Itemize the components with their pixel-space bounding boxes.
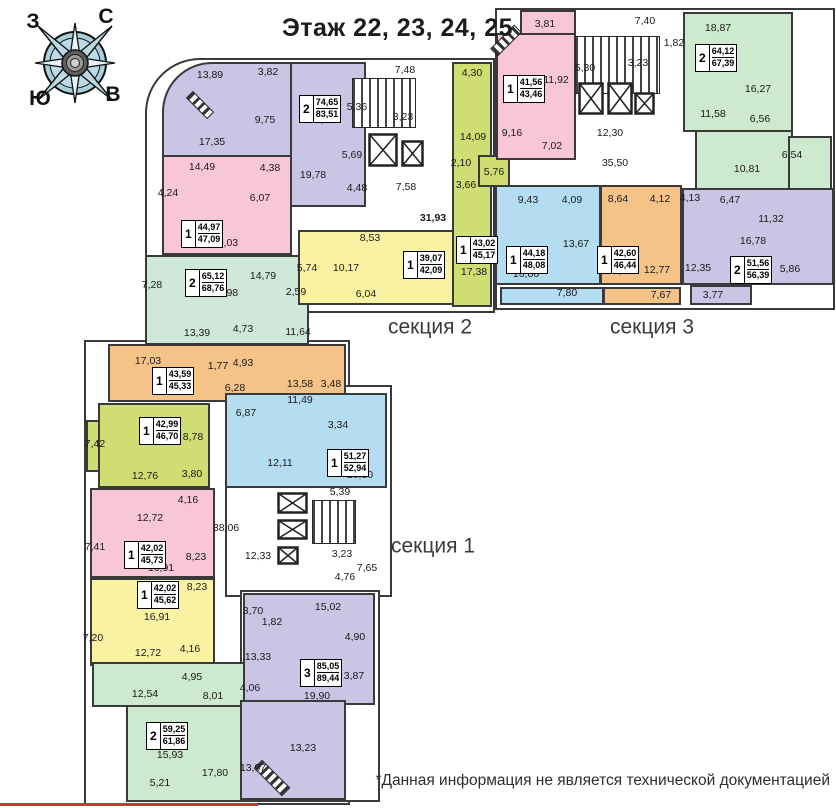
room-area-label: 10,17 [333, 263, 359, 274]
room-area-label: 11,64 [285, 327, 311, 338]
apartment-s3-1k-4346-info-badge: 141,5643,46 [503, 75, 545, 103]
apartment-s3-1k-4808-info-badge: 144,1848,08 [506, 246, 548, 274]
room-area-label: 7,02 [542, 141, 562, 152]
core-area-label: 3,23 [332, 549, 352, 560]
room-area-label: 19,78 [300, 170, 326, 181]
room-area-label: 7,80 [557, 288, 577, 299]
room-area-label: 13,58 [287, 379, 313, 390]
apartment-s1-2k-6186[interactable] [92, 662, 248, 707]
room-area-label: 4,24 [158, 188, 178, 199]
elevator-icon [277, 492, 308, 514]
core-area-label: 35,50 [602, 158, 628, 169]
room-area-label: 4,12 [650, 194, 670, 205]
room-area-label: 7,42 [85, 439, 105, 450]
compass-west-label: З [26, 10, 39, 34]
core-area-label: 5,39 [330, 487, 350, 498]
room-area-label: 9,75 [255, 115, 275, 126]
room-area-label: 8,64 [608, 194, 628, 205]
room-area-label: 12,72 [135, 648, 161, 659]
stairs-icon [312, 500, 356, 544]
core-area-label: 7,40 [635, 16, 655, 27]
room-area-label: 8,01 [203, 691, 223, 702]
apartment-s2-1k-4709-info-badge: 144,9747,09 [181, 220, 223, 248]
room-area-label: 14,09 [460, 132, 486, 143]
core-area-label: 3,23 [628, 58, 648, 69]
floor-plan-page: С З Ю В Этаж 22, 23, 24, 25 13,893,829,7… [0, 0, 836, 808]
elevator-icon [634, 92, 655, 115]
room-area-label: 6,04 [356, 289, 376, 300]
room-area-label: 11,58 [700, 109, 726, 120]
room-area-label: 8,53 [360, 233, 380, 244]
page-title: Этаж 22, 23, 24, 25 [282, 14, 513, 43]
room-area-label: 12,11 [267, 458, 293, 469]
room-area-label: 4,13 [680, 193, 700, 204]
elevator-icon [607, 82, 633, 115]
room-area-label: 6,07 [250, 193, 270, 204]
room-area-label: 5,74 [297, 263, 317, 274]
core-area-label: 12,30 [597, 128, 623, 139]
apartment-s2-2k-6876-info-badge: 265,1268,76 [185, 269, 227, 297]
apartment-s1-2k-6186-info-badge: 259,2561,86 [146, 722, 188, 750]
room-area-label: 11,92 [543, 75, 569, 86]
room-area-label: 3,80 [182, 469, 202, 480]
apartment-s1-2k-6186[interactable] [126, 705, 246, 802]
section-label: секция 3 [610, 317, 694, 338]
room-area-label: 6,54 [782, 150, 802, 161]
section-label: секция 1 [391, 536, 475, 557]
room-area-label: 2,59 [286, 287, 306, 298]
room-area-label: 1,77 [208, 361, 228, 372]
core-area-label: 31,93 [420, 213, 446, 224]
room-area-label: 4,09 [562, 195, 582, 206]
apartment-s3-2k-6739-info-badge: 264,1267,39 [695, 44, 737, 72]
room-area-label: 15,02 [315, 602, 341, 613]
room-area-label: 9,43 [518, 195, 538, 206]
room-area-label: 3,70 [243, 606, 263, 617]
compass-south-label: Ю [29, 87, 51, 111]
core-area-label: 4,76 [335, 572, 355, 583]
apartment-s1-3k-8944-info-badge: 385,0589,44 [300, 659, 342, 687]
room-area-label: 13,67 [563, 239, 589, 250]
core-area-label: 7,48 [395, 65, 415, 76]
room-area-label: 3,77 [703, 290, 723, 301]
room-area-label: 4,48 [347, 183, 367, 194]
room-area-label: 4,95 [182, 672, 202, 683]
room-area-label: 17,38 [461, 267, 487, 278]
room-area-label: 3,34 [328, 420, 348, 431]
elevator-icon [277, 519, 308, 540]
apartment-s2-1k-4209-info-badge: 139,0742,09 [403, 251, 445, 279]
core-area-label: 3,23 [393, 112, 413, 123]
room-area-label: 14,49 [189, 162, 215, 173]
compass-north-label: С [98, 5, 113, 29]
room-area-label: 3,87 [344, 671, 364, 682]
room-area-label: 8,23 [186, 552, 206, 563]
room-area-label: 4,06 [240, 683, 260, 694]
room-area-label: 1,82 [262, 617, 282, 628]
room-area-label: 12,54 [132, 689, 158, 700]
room-area-label: 6,47 [720, 195, 740, 206]
elevator-icon [277, 546, 299, 565]
room-area-label: 4,93 [233, 358, 253, 369]
room-area-label: 4,30 [462, 68, 482, 79]
apartment-s3-2k-6739[interactable] [695, 130, 793, 192]
room-area-label: 4,90 [345, 632, 365, 643]
room-area-label: 13,89 [197, 70, 223, 81]
section-label: секция 2 [388, 317, 472, 338]
room-area-label: 12,76 [132, 471, 158, 482]
bottom-red-line [0, 803, 258, 806]
room-area-label: 12,72 [137, 513, 163, 524]
room-area-label: 16,78 [740, 236, 766, 247]
compass-east-label: В [105, 83, 120, 107]
room-area-label: 16,91 [144, 612, 170, 623]
room-area-label: 16,27 [745, 84, 771, 95]
room-area-label: 13,39 [184, 328, 210, 339]
room-area-label: 6,28 [225, 383, 245, 394]
room-area-label: 4,73 [233, 324, 253, 335]
apartment-s1-1k-5294-info-badge: 151,2752,94 [327, 449, 369, 477]
room-area-label: 3,82 [258, 67, 278, 78]
room-area-label: 3,48 [321, 379, 341, 390]
apartment-s1-1k-4562-info-badge: 142,0245,62 [137, 581, 179, 609]
room-area-label: 19,90 [304, 691, 330, 702]
core-area-label: 7,65 [357, 563, 377, 574]
room-area-label: 5,86 [780, 264, 800, 275]
room-area-label: 7,28 [142, 280, 162, 291]
apartment-s3-2k-6739[interactable] [788, 136, 832, 190]
room-area-label: 3,66 [456, 180, 476, 191]
room-area-label: 12,77 [644, 265, 670, 276]
room-area-label: 13,23 [290, 743, 316, 754]
apartment-s3-2k-5639-info-badge: 251,5656,39 [730, 256, 772, 284]
room-area-label: 11,49 [287, 395, 313, 406]
room-area-label: 14,79 [250, 271, 276, 282]
room-area-label: 5,76 [484, 167, 504, 178]
apartment-s2-1k-4517-info-badge: 143,0245,17 [456, 236, 498, 264]
room-area-label: 4,38 [260, 163, 280, 174]
room-area-label: 10,81 [734, 164, 760, 175]
apartment-s3-1k-4644-info-badge: 142,6046,44 [597, 246, 639, 274]
room-area-label: 15,93 [157, 750, 183, 761]
room-area-label: 12,35 [685, 263, 711, 274]
core-area-label: 7,58 [396, 182, 416, 193]
room-area-label: 6,87 [236, 408, 256, 419]
disclaimer-note: *Данная информация не является техническ… [375, 772, 830, 790]
room-area-label: 13,97 [240, 763, 266, 774]
room-area-label: 6,56 [750, 114, 770, 125]
room-area-label: 4,16 [178, 495, 198, 506]
room-area-label: 17,03 [135, 356, 161, 367]
room-area-label: 7,41 [85, 542, 105, 553]
apartment-s2-2k-8351-info-badge: 274,6583,51 [299, 95, 341, 123]
core-area-label: 38,06 [213, 523, 239, 534]
room-area-label: 2,10 [451, 158, 471, 169]
room-area-label: 17,80 [202, 768, 228, 779]
room-area-label: 11,32 [758, 214, 784, 225]
room-area-label: 5,21 [150, 778, 170, 789]
room-area-label: 3,81 [535, 19, 555, 30]
room-area-label: 4,16 [180, 644, 200, 655]
elevator-icon [578, 82, 604, 115]
elevator-icon [401, 140, 424, 167]
apartment-s1-1k-4670-info-badge: 142,9946,70 [139, 417, 181, 445]
room-area-label: 13,33 [245, 652, 271, 663]
apartment-s3-1k-4808[interactable] [500, 287, 604, 305]
apartment-s1-1k-4533-info-badge: 143,5945,33 [152, 367, 194, 395]
room-area-label: 18,87 [705, 23, 731, 34]
room-area-label: 7,20 [83, 633, 103, 644]
core-area-label: 5,30 [575, 63, 595, 74]
room-area-label: 5,69 [342, 150, 362, 161]
room-area-label: 9,16 [502, 128, 522, 139]
elevator-icon [368, 133, 398, 167]
core-area-label: 12,33 [245, 551, 271, 562]
core-area-label: 1,82 [664, 38, 684, 49]
room-area-label: 7,67 [651, 290, 671, 301]
room-area-label: 8,78 [183, 432, 203, 443]
apartment-s1-1k-4573-info-badge: 142,0245,73 [124, 541, 166, 569]
room-area-label: 5,36 [347, 102, 367, 113]
room-area-label: 8,23 [187, 582, 207, 593]
room-area-label: 17,35 [199, 137, 225, 148]
